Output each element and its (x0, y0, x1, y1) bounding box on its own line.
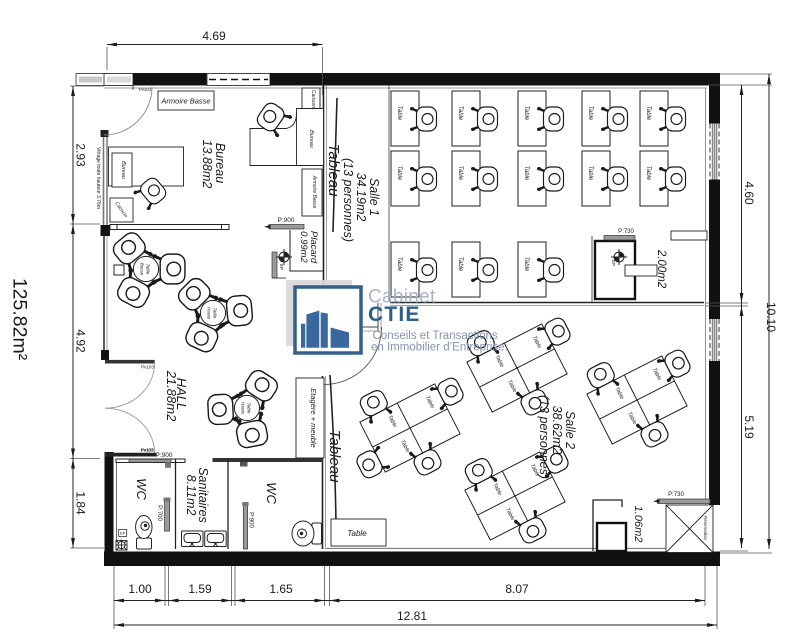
svg-text:Conseils et Transactions: Conseils et Transactions (373, 330, 499, 342)
svg-text:2.93: 2.93 (74, 143, 88, 167)
svg-text:Vitrage toute hauteur 3.76m: Vitrage toute hauteur 3.76m (95, 147, 101, 209)
svg-text:(13 personnes): (13 personnes) (537, 395, 551, 479)
svg-text:en Immobilier d’Entreprise.: en Immobilier d’Entreprise. (371, 342, 508, 354)
svg-text:1.06m2: 1.06m2 (632, 506, 644, 543)
svg-text:EP: EP (120, 531, 126, 536)
svg-text:P:730: P:730 (668, 492, 684, 498)
svg-text:21.88m2: 21.88m2 (164, 370, 179, 422)
svg-text:WC: WC (134, 478, 149, 500)
svg-text:P:900: P:900 (278, 217, 295, 224)
svg-text:125.82m²: 125.82m² (9, 278, 31, 361)
svg-text:Réservation: Réservation (703, 516, 708, 541)
svg-text:4.92: 4.92 (74, 329, 88, 353)
svg-text:13.88m2: 13.88m2 (200, 140, 214, 189)
svg-text:Table: Table (247, 403, 252, 414)
svg-text:Basse: Basse (140, 263, 145, 276)
svg-text:Pv103: Pv103 (141, 448, 154, 453)
svg-text:WC: WC (264, 482, 279, 504)
svg-text:10.10: 10.10 (764, 302, 778, 332)
svg-text:12.81: 12.81 (397, 609, 427, 623)
svg-text:8.07: 8.07 (505, 582, 529, 596)
svg-text:Table: Table (347, 529, 367, 538)
svg-text:38.62m2: 38.62m2 (550, 406, 564, 455)
svg-text:8.11m2: 8.11m2 (184, 475, 198, 516)
svg-text:1.84: 1.84 (74, 491, 88, 515)
svg-text:P:900: P:900 (248, 512, 254, 528)
svg-text:1.59: 1.59 (188, 582, 212, 596)
svg-text:Bureau: Bureau (120, 161, 126, 179)
svg-text:Haute: Haute (207, 307, 212, 320)
svg-text:Table: Table (213, 308, 218, 319)
svg-text:CTIE: CTIE (368, 303, 421, 326)
svg-text:Bureau: Bureau (213, 143, 227, 183)
svg-text:Caisson: Caisson (310, 90, 316, 108)
svg-text:Armoire Basse: Armoire Basse (160, 97, 210, 106)
svg-text:P:900: P:900 (156, 452, 173, 459)
svg-text:P:700: P:700 (156, 505, 162, 521)
svg-text:(13 personnes): (13 personnes) (341, 158, 355, 242)
svg-text:Pv103: Pv103 (141, 365, 154, 370)
svg-text:4.69: 4.69 (202, 29, 226, 43)
svg-text:P:730: P:730 (618, 229, 634, 235)
svg-text:Salle 2: Salle 2 (563, 411, 577, 449)
svg-text:EP: EP (279, 264, 284, 270)
svg-text:34.19m2: 34.19m2 (354, 173, 368, 222)
svg-text:1.00: 1.00 (128, 582, 152, 596)
svg-text:4.60: 4.60 (742, 181, 756, 205)
svg-text:Etagère + meuble: Etagère + meuble (309, 388, 318, 447)
svg-text:Armoire Basse: Armoire Basse (311, 175, 317, 209)
svg-text:1.65: 1.65 (269, 582, 293, 596)
svg-text:Haute: Haute (241, 402, 246, 415)
svg-text:Bureau: Bureau (308, 130, 314, 148)
svg-text:0.99m2: 0.99m2 (298, 231, 309, 263)
svg-text:Salle 1: Salle 1 (367, 178, 381, 216)
svg-text:Table: Table (146, 264, 151, 275)
svg-text:EP: EP (611, 260, 616, 266)
svg-text:5.19: 5.19 (742, 415, 756, 439)
